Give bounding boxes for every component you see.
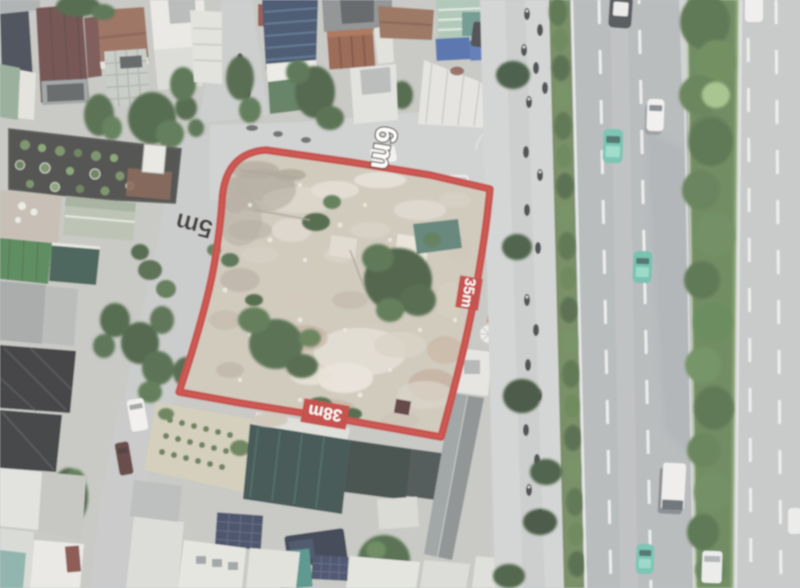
svg-text:6m: 6m <box>364 124 403 172</box>
